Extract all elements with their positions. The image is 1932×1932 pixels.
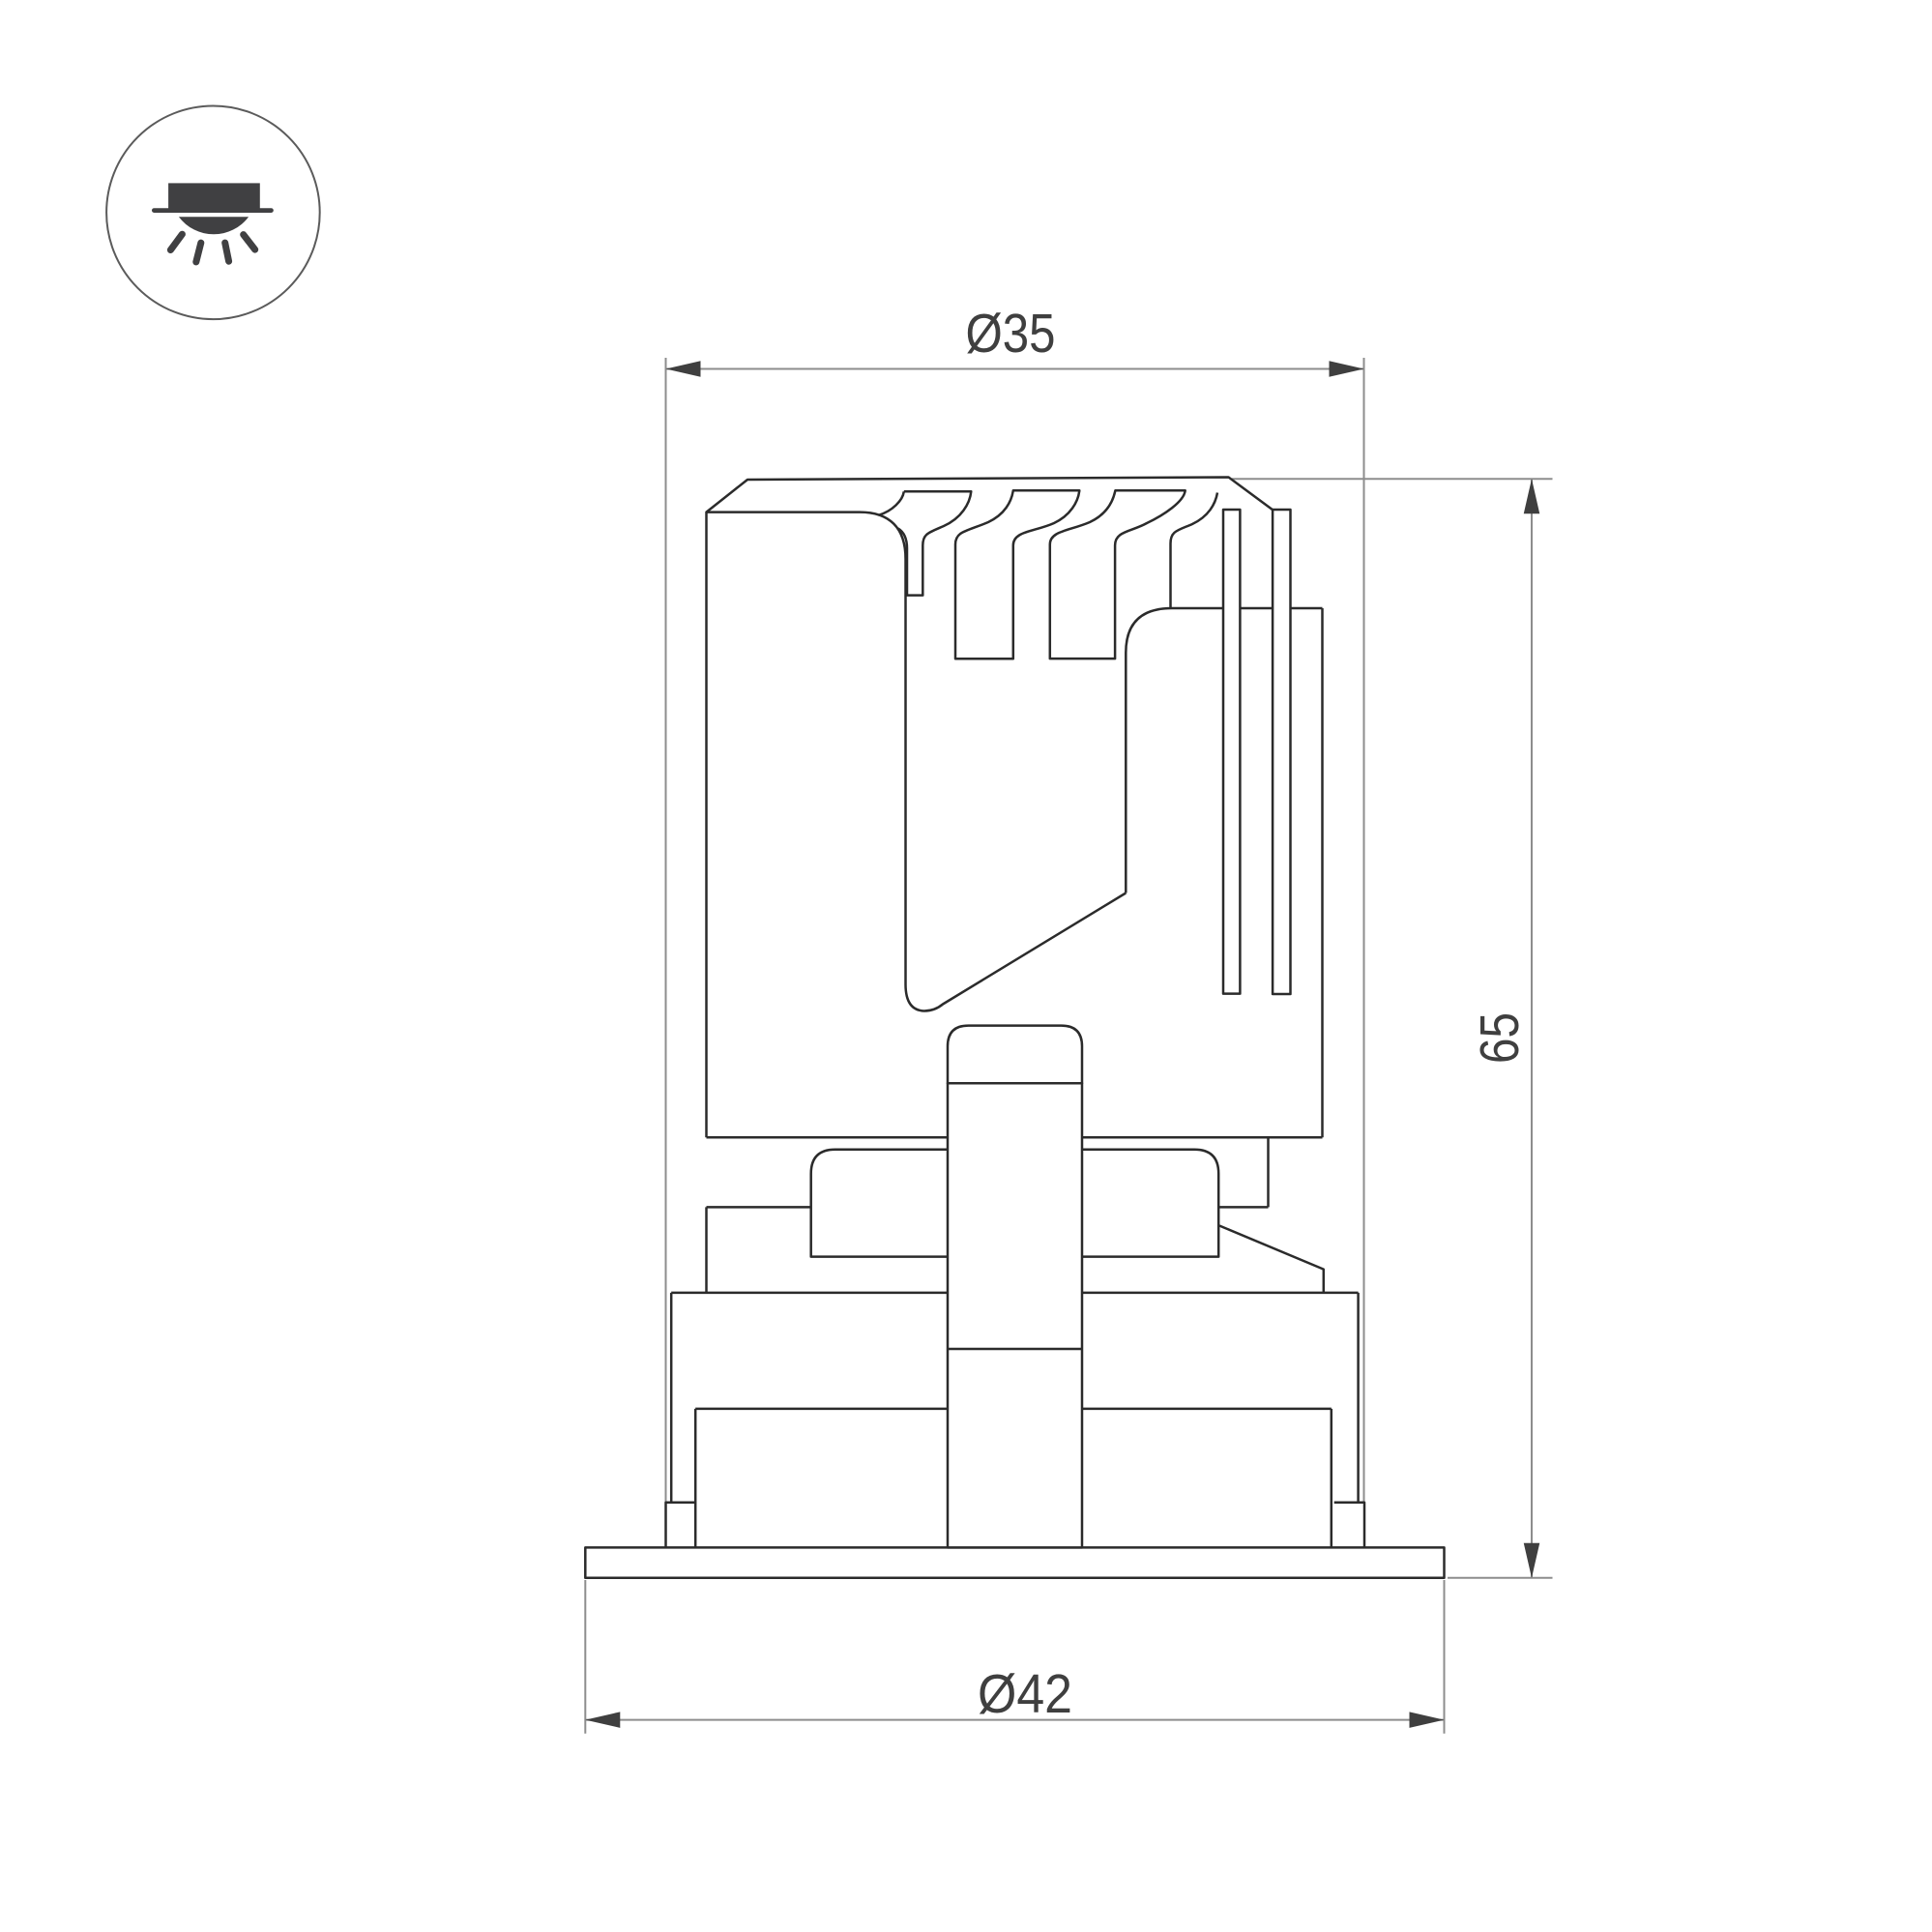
svg-text:65: 65 (1469, 1012, 1531, 1064)
svg-text:Ø35: Ø35 (966, 303, 1056, 365)
svg-text:Ø42: Ø42 (978, 1663, 1072, 1725)
